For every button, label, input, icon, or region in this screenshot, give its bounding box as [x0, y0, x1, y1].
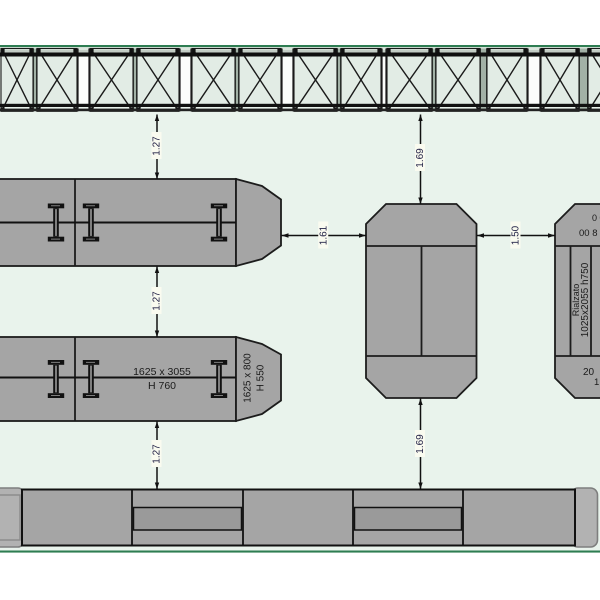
svg-text:1625 x 3055: 1625 x 3055 — [133, 366, 191, 378]
svg-text:1.50: 1.50 — [511, 225, 522, 245]
svg-text:1.27: 1.27 — [152, 291, 163, 311]
svg-text:1.69: 1.69 — [415, 434, 426, 454]
svg-text:1625 x 800: 1625 x 800 — [243, 353, 254, 403]
svg-text:H 550: H 550 — [256, 364, 267, 391]
svg-text:1.27: 1.27 — [152, 444, 163, 464]
svg-text:H 760: H 760 — [148, 380, 176, 392]
svg-text:1.61: 1.61 — [318, 225, 329, 245]
svg-text:1.69: 1.69 — [415, 148, 426, 168]
svg-text:0 0: 0 0 — [592, 213, 600, 223]
svg-text:1025x2055 h750: 1025x2055 h750 — [580, 262, 591, 337]
svg-text:1.27: 1.27 — [152, 136, 163, 156]
svg-text:00 8: 00 8 — [579, 228, 598, 239]
svg-text:20: 20 — [583, 367, 595, 378]
svg-text:1: 1 — [594, 377, 599, 388]
